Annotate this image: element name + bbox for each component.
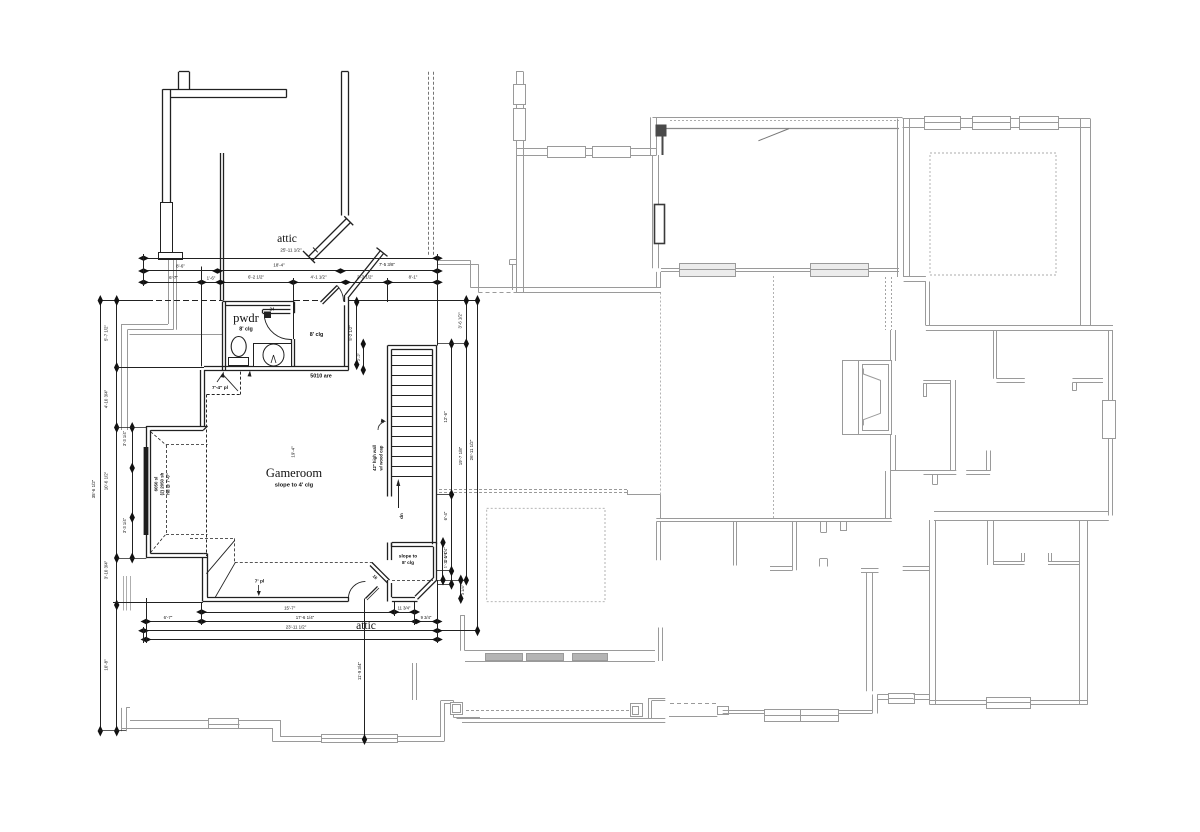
svg-text:3'-3 1/4": 3'-3 1/4" — [122, 517, 127, 533]
svg-text:dn: dn — [399, 513, 404, 519]
svg-text:19'-7 1/8": 19'-7 1/8" — [458, 446, 463, 465]
svg-text:6050 sl: 6050 sl — [154, 477, 159, 492]
svg-text:35'-6 1/2": 35'-6 1/2" — [91, 479, 96, 498]
svg-text:3'-6 1/2": 3'-6 1/2" — [458, 312, 463, 329]
svg-text:w/ wood cap: w/ wood cap — [379, 445, 384, 471]
svg-text:7'-4" pl: 7'-4" pl — [212, 385, 228, 391]
svg-text:19'-4": 19'-4" — [291, 446, 296, 458]
svg-text:24: 24 — [270, 307, 275, 312]
svg-text:9 3/4": 9 3/4" — [421, 615, 432, 620]
svg-text:11'-9 3/4": 11'-9 3/4" — [357, 661, 362, 680]
svg-text:10'-6 1/2": 10'-6 1/2" — [104, 471, 109, 490]
svg-text:7' pl: 7' pl — [255, 579, 264, 585]
svg-text:6'-7": 6'-7" — [164, 615, 173, 620]
svg-text:4'-1 1/2": 4'-1 1/2" — [310, 275, 327, 280]
svg-text:8'-1": 8'-1" — [409, 275, 418, 280]
svg-text:4'-10 3/4": 4'-10 3/4" — [104, 389, 109, 408]
svg-text:2'-2": 2'-2" — [356, 352, 361, 361]
svg-text:attic: attic — [277, 233, 297, 245]
svg-text:25'-11 1/2": 25'-11 1/2" — [280, 248, 302, 253]
svg-text:3'-3 1/4": 3'-3 1/4" — [122, 430, 127, 446]
svg-text:8'-6": 8'-6" — [176, 264, 185, 269]
svg-text:12'-6": 12'-6" — [443, 411, 448, 423]
svg-text:3 1/4": 3 1/4" — [460, 584, 465, 595]
svg-text:attic: attic — [356, 620, 376, 632]
svg-text:7'-5 3/8": 7'-5 3/8" — [379, 262, 396, 267]
svg-text:(2) 2050 sh: (2) 2050 sh — [160, 472, 165, 495]
svg-text:1'-6": 1'-6" — [207, 276, 216, 281]
svg-text:slope to: slope to — [399, 554, 417, 560]
svg-text:10'-8": 10'-8" — [104, 659, 109, 671]
svg-text:17'-6 1/4": 17'-6 1/4" — [296, 615, 315, 620]
svg-text:42" high wall: 42" high wall — [372, 445, 377, 471]
svg-text:11 3/4": 11 3/4" — [398, 606, 411, 611]
svg-text:8' clg: 8' clg — [402, 560, 414, 566]
svg-text:5010 are: 5010 are — [310, 374, 332, 380]
svg-text:3'-10 3/4": 3'-10 3/4" — [104, 560, 109, 579]
svg-text:26'-11 1/2": 26'-11 1/2" — [469, 439, 474, 460]
svg-text:8' clg: 8' clg — [310, 332, 324, 338]
svg-text:5'-7 1/2": 5'-7 1/2" — [104, 325, 109, 342]
svg-text:6'-4": 6'-4" — [443, 511, 448, 520]
svg-text:pwdr: pwdr — [233, 311, 260, 325]
svg-text:5'-2 1/2": 5'-2 1/2" — [348, 325, 353, 341]
svg-text:8' clg: 8' clg — [239, 327, 253, 333]
svg-text:23'-11 1/2": 23'-11 1/2" — [286, 625, 307, 630]
svg-text:2'-3 1/2": 2'-3 1/2" — [357, 275, 374, 280]
svg-text:1'-11 1/4": 1'-11 1/4" — [443, 551, 448, 568]
svg-text:6'-7": 6'-7" — [169, 275, 178, 280]
svg-text:slope to 4' clg: slope to 4' clg — [275, 483, 314, 489]
svg-text:15'-7": 15'-7" — [284, 606, 296, 611]
svg-text:hd @ 7'-0": hd @ 7'-0" — [166, 473, 171, 495]
svg-text:6'-2 1/2": 6'-2 1/2" — [248, 275, 265, 280]
svg-text:18'-4": 18'-4" — [273, 263, 285, 268]
svg-text:Gameroom: Gameroom — [266, 466, 323, 480]
